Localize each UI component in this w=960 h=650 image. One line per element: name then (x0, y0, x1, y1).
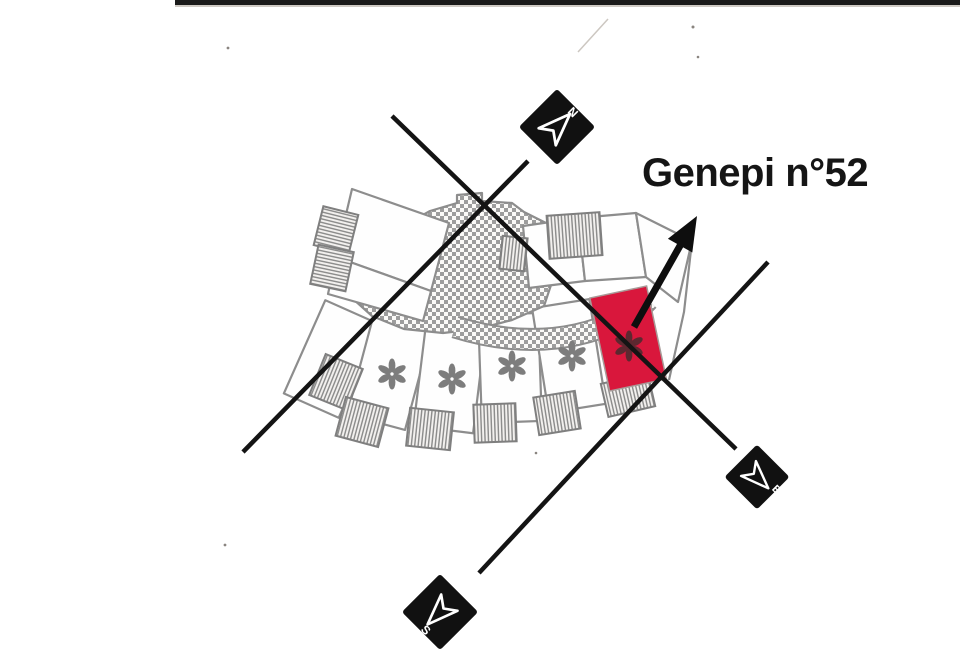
balcony (406, 408, 454, 450)
balcony (547, 212, 603, 259)
compass-marker-east: E (724, 444, 789, 509)
unit-label: Genepi n°52 (642, 151, 868, 196)
balcony (473, 403, 516, 442)
upper-left-units (310, 189, 449, 321)
balcony (310, 245, 354, 292)
site-plan-drawing: N E S (0, 0, 960, 650)
scanned-site-plan: N E S Genepi n°52 (0, 0, 960, 650)
south-diamond (402, 574, 478, 650)
balcony (533, 391, 580, 435)
north-diamond (519, 89, 595, 165)
compass-marker-south: S (402, 574, 478, 650)
compass-marker-north: N (519, 89, 595, 165)
east-diamond (724, 444, 789, 509)
